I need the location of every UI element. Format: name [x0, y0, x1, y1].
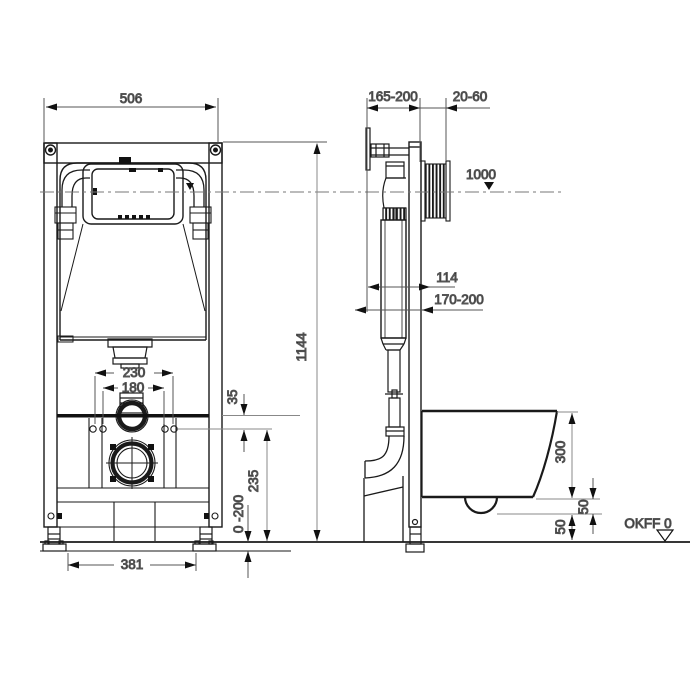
toilet-bowl [422, 411, 557, 513]
dim-label-0-200: 0 -200 [231, 495, 246, 533]
valve-fittings [55, 207, 211, 239]
frame-right-post [209, 143, 222, 527]
dim-label-20-60: 20-60 [453, 89, 488, 104]
dim-label-300: 300 [553, 441, 568, 464]
cistern-outline [60, 163, 206, 340]
dim-label-165-200: 165-200 [368, 89, 418, 104]
side-post [409, 142, 421, 527]
dim-label-506: 506 [120, 91, 143, 106]
protection-box [421, 161, 450, 221]
wall-bracket [366, 128, 409, 170]
window-clips [93, 157, 194, 219]
bowl-trap-arc [465, 497, 497, 513]
dim-label-1144: 1144 [294, 332, 309, 362]
drawing-svg: 506 1144 230 180 35 235 0 -200 [0, 0, 700, 700]
level-arrow-icon [484, 182, 494, 190]
dim-label-230: 230 [123, 365, 146, 380]
mounting-rail [57, 414, 209, 418]
dim-label-35: 35 [225, 389, 240, 404]
dim-label-180: 180 [122, 380, 145, 395]
front-view [43, 143, 222, 551]
dim-label-okff: OKFF 0 [624, 516, 671, 531]
cistern-profile [381, 162, 406, 436]
dim-label-50-lower: 50 [553, 519, 568, 534]
dim-label-50-upper: 50 [576, 499, 591, 514]
feet [43, 527, 216, 551]
access-window-inner [92, 169, 174, 219]
drain-elbow [364, 436, 404, 542]
dim-label-1000: 1000 [466, 167, 496, 182]
bottom-screws [48, 513, 218, 519]
dim-label-170-200: 170-200 [434, 292, 484, 307]
corner-screw-icon [46, 145, 221, 155]
flush-bell [108, 339, 152, 368]
frame-left-post [44, 143, 57, 527]
flush-pipe [116, 393, 148, 432]
frame-top-rail [44, 143, 222, 163]
dim-label-235: 235 [246, 470, 261, 493]
datum-triangle-icon [657, 530, 673, 541]
lower-struts [57, 418, 209, 541]
dim-label-114: 114 [436, 270, 458, 285]
drain-pipe [106, 437, 158, 489]
technical-drawing: 506 1144 230 180 35 235 0 -200 [0, 0, 700, 700]
dim-label-381: 381 [121, 557, 144, 572]
